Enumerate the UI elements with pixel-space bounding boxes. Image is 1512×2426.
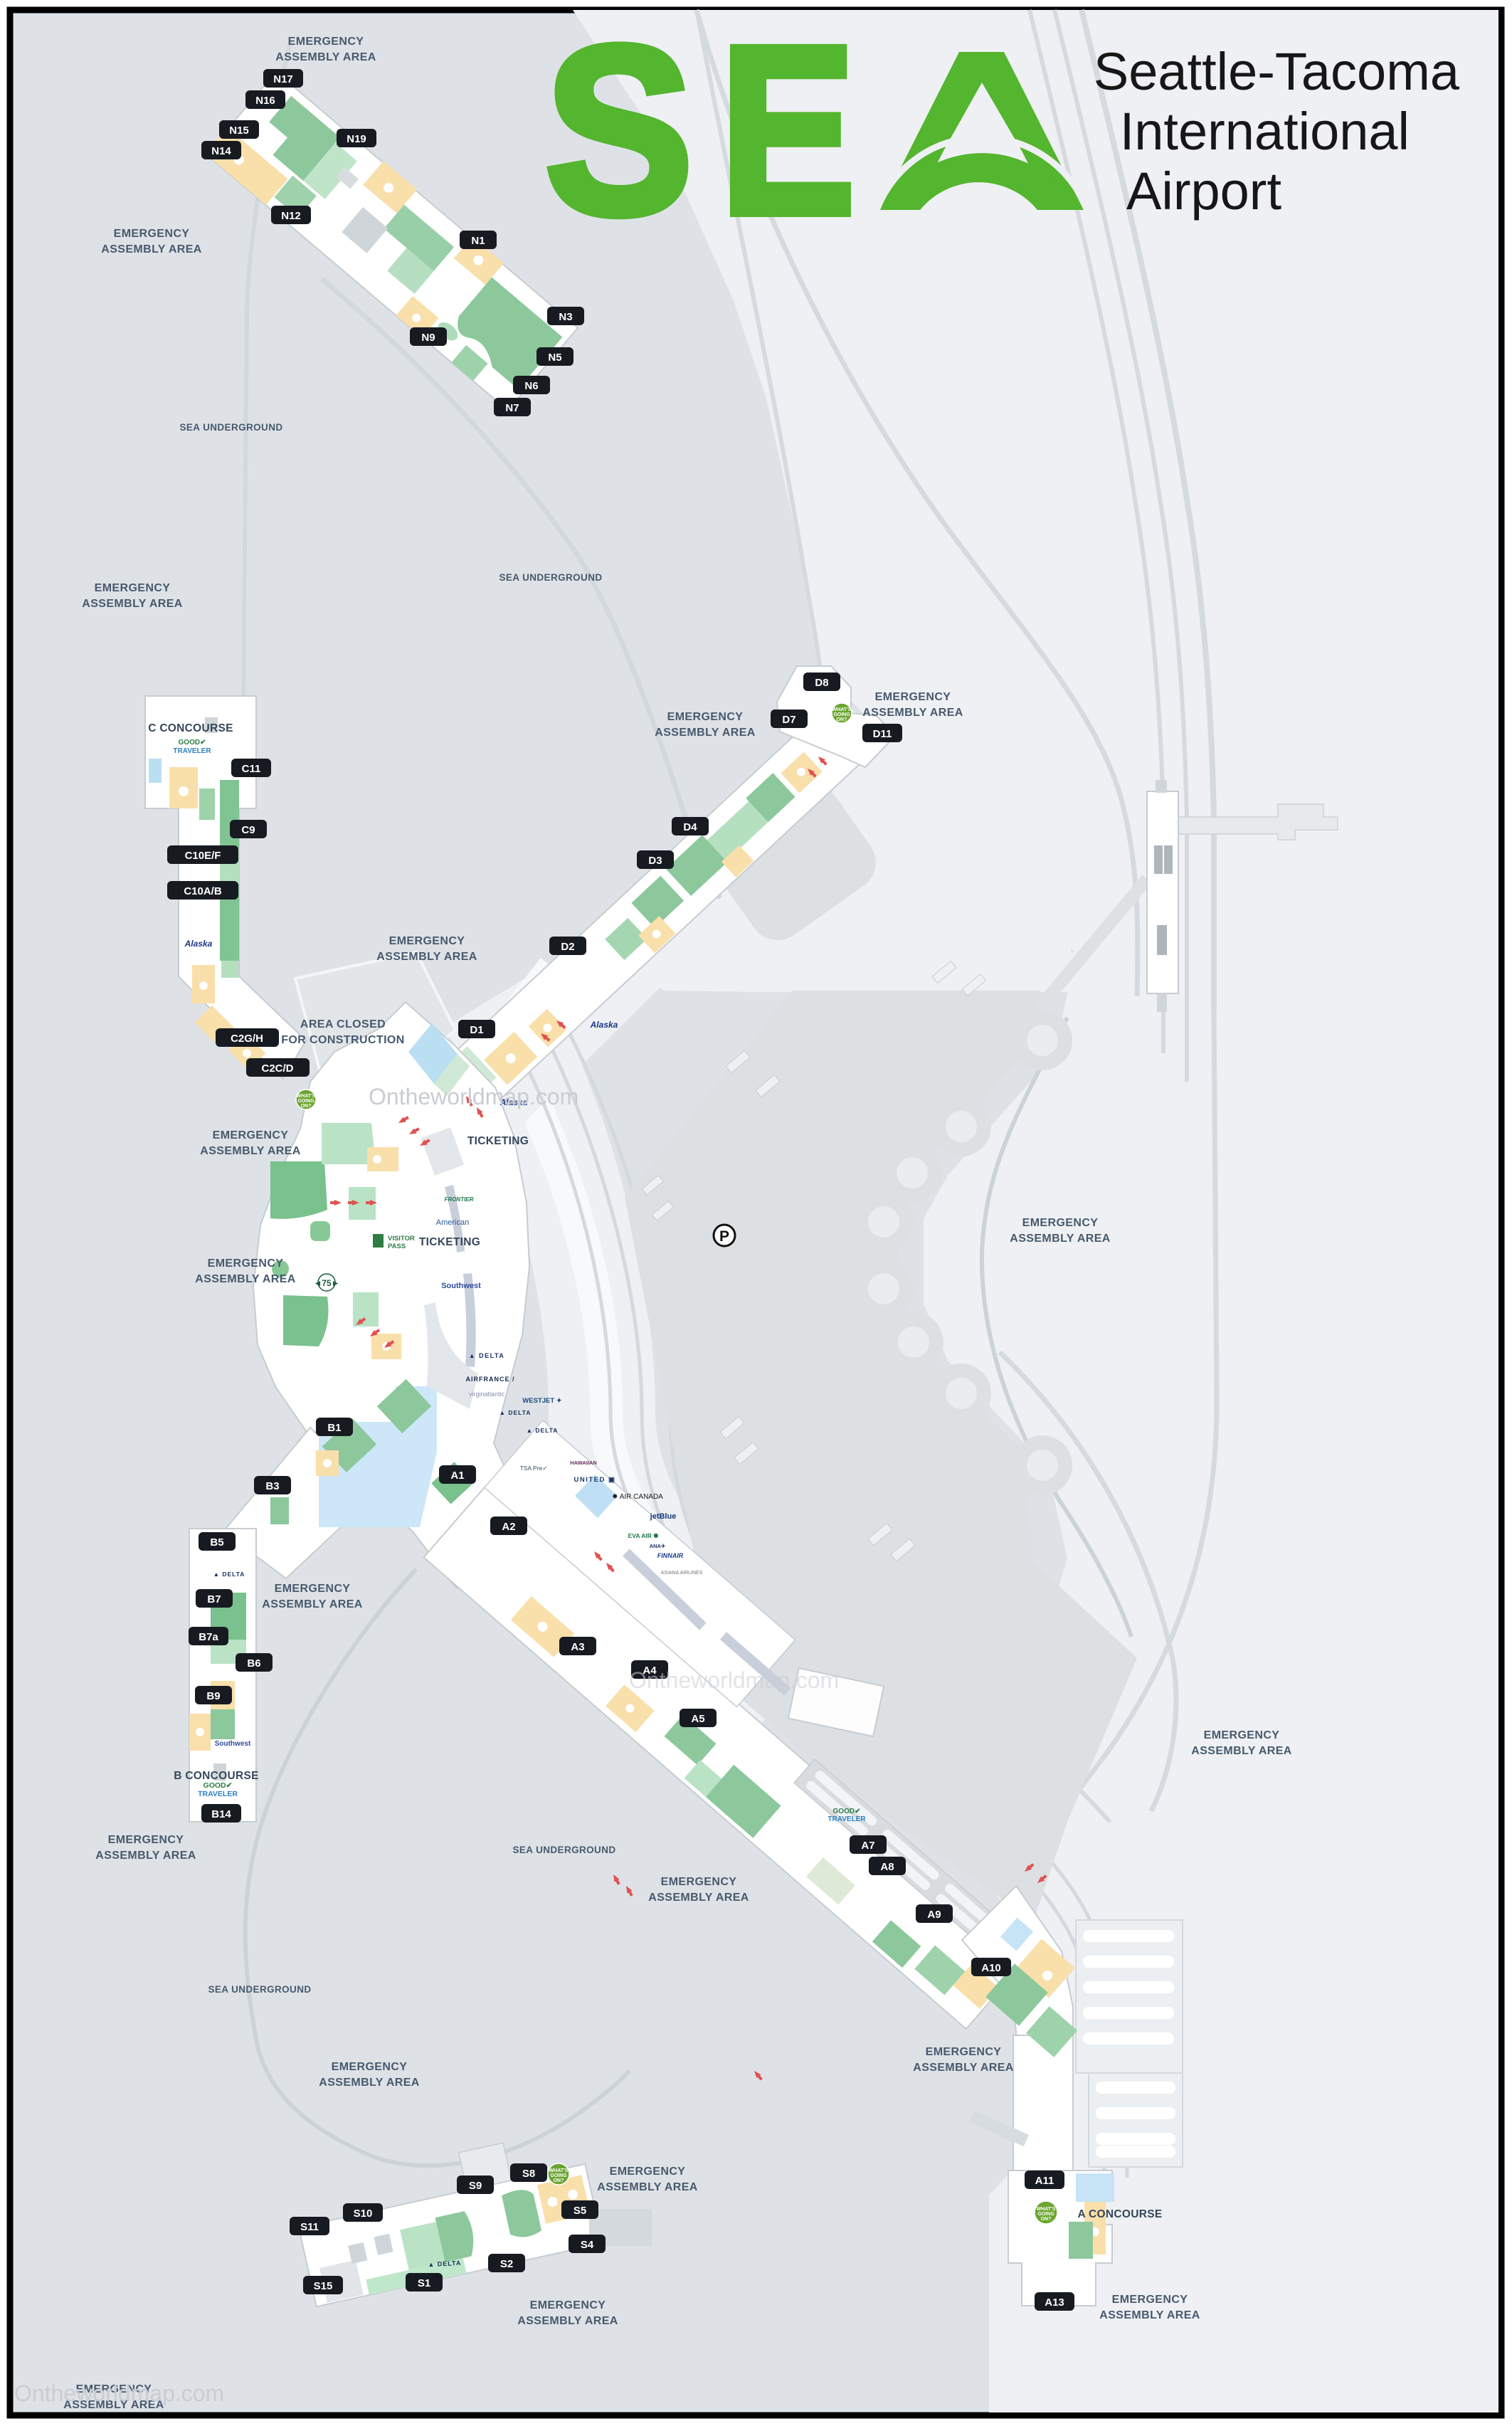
svg-text:AREA CLOSED: AREA CLOSED	[300, 1018, 386, 1030]
svg-text:ASSEMBLY AREA: ASSEMBLY AREA	[648, 1892, 749, 1904]
svg-text:ASSEMBLY AREA: ASSEMBLY AREA	[913, 2062, 1014, 2074]
svg-text:D8: D8	[815, 677, 828, 689]
svg-text:International: International	[1120, 102, 1410, 161]
svg-text:N17: N17	[273, 73, 293, 85]
svg-text:EMERGENCY: EMERGENCY	[875, 691, 951, 703]
svg-text:GOING: GOING	[297, 1099, 314, 1104]
svg-text:FOR CONSTRUCTION: FOR CONSTRUCTION	[281, 1034, 405, 1046]
svg-text:D4: D4	[683, 821, 697, 833]
svg-text:A11: A11	[1035, 2175, 1054, 2187]
svg-text:EMERGENCY: EMERGENCY	[610, 2166, 686, 2178]
svg-text:EMERGENCY: EMERGENCY	[332, 2061, 408, 2073]
svg-text:FINNAIR: FINNAIR	[657, 1552, 684, 1559]
svg-text:N15: N15	[229, 125, 249, 137]
svg-text:D3: D3	[648, 855, 662, 867]
svg-text:GOOD✔: GOOD✔	[179, 739, 206, 747]
svg-text:ASSEMBLY AREA: ASSEMBLY AREA	[195, 1273, 296, 1285]
svg-text:ASIANA AIRLINES: ASIANA AIRLINES	[661, 1571, 703, 1576]
svg-text:ASSEMBLY AREA: ASSEMBLY AREA	[376, 951, 477, 963]
svg-text:EMERGENCY: EMERGENCY	[661, 1876, 737, 1888]
svg-text:WHAT'S: WHAT'S	[549, 2168, 569, 2173]
svg-text:WHAT'S: WHAT'S	[297, 1094, 316, 1099]
svg-text:A5: A5	[691, 1713, 704, 1725]
svg-text:C11: C11	[242, 763, 261, 775]
svg-text:EMERGENCY: EMERGENCY	[108, 1834, 184, 1846]
svg-text:▲ DELTA: ▲ DELTA	[527, 1427, 559, 1434]
svg-text:ASSEMBLY AREA: ASSEMBLY AREA	[655, 727, 756, 739]
svg-text:Ontheworldmap.com: Ontheworldmap.com	[369, 1084, 578, 1109]
svg-text:ANA✈: ANA✈	[650, 1543, 666, 1549]
svg-text:EMERGENCY: EMERGENCY	[667, 711, 744, 723]
svg-text:S10: S10	[354, 2208, 373, 2220]
svg-text:A10: A10	[981, 1962, 1001, 1974]
svg-text:A9: A9	[927, 1909, 941, 1921]
svg-text:S5: S5	[573, 2205, 586, 2217]
svg-text:GOOD✔: GOOD✔	[833, 1808, 861, 1815]
svg-text:FRONTIER: FRONTIER	[445, 1196, 474, 1203]
svg-text:ASSEMBLY AREA: ASSEMBLY AREA	[319, 2077, 420, 2089]
svg-text:C2G/H: C2G/H	[231, 1033, 263, 1045]
svg-text:SEA UNDERGROUND: SEA UNDERGROUND	[512, 1845, 615, 1855]
svg-text:ON?: ON?	[1041, 2217, 1052, 2222]
svg-text:A13: A13	[1045, 2296, 1064, 2309]
svg-text:Seattle-Tacoma: Seattle-Tacoma	[1094, 42, 1460, 101]
svg-text:N12: N12	[281, 210, 301, 222]
svg-text:EMERGENCY: EMERGENCY	[1204, 1729, 1280, 1741]
svg-text:◄75►: ◄75►	[313, 1278, 339, 1288]
svg-text:B5: B5	[210, 1536, 223, 1549]
svg-text:N7: N7	[505, 402, 519, 414]
svg-text:C10E/F: C10E/F	[185, 850, 221, 862]
svg-text:D2: D2	[561, 941, 574, 953]
svg-text:N5: N5	[548, 352, 561, 364]
svg-text:N9: N9	[421, 332, 435, 344]
svg-text:TSA Pre✓: TSA Pre✓	[520, 1465, 548, 1472]
svg-text:EMERGENCY: EMERGENCY	[926, 2046, 1002, 2058]
svg-text:WHAT'S: WHAT'S	[1037, 2207, 1056, 2212]
svg-text:EMERGENCY: EMERGENCY	[95, 582, 171, 594]
svg-text:▲ DELTA: ▲ DELTA	[213, 1571, 245, 1578]
svg-text:B14: B14	[211, 1808, 231, 1820]
svg-text:A7: A7	[861, 1840, 874, 1852]
svg-text:SEA UNDERGROUND: SEA UNDERGROUND	[499, 572, 602, 583]
svg-text:D1: D1	[470, 1024, 483, 1036]
svg-text:S11: S11	[300, 2221, 319, 2233]
svg-text:C CONCOURSE: C CONCOURSE	[148, 722, 233, 734]
svg-text:EMERGENCY: EMERGENCY	[530, 2299, 606, 2311]
svg-text:ASSEMBLY AREA: ASSEMBLY AREA	[862, 707, 963, 719]
svg-text:TRAVELER: TRAVELER	[173, 747, 211, 755]
svg-text:EMERGENCY: EMERGENCY	[114, 228, 190, 240]
svg-text:PASS: PASS	[388, 1243, 406, 1250]
svg-text:▲ DELTA: ▲ DELTA	[469, 1352, 505, 1359]
svg-text:A1: A1	[450, 1470, 464, 1482]
svg-text:Alaska: Alaska	[590, 1020, 618, 1030]
svg-text:EVA AIR ✺: EVA AIR ✺	[628, 1532, 660, 1539]
svg-text:B1: B1	[327, 1422, 341, 1434]
svg-text:S: S	[545, 0, 693, 264]
svg-text:HAWAIIAN: HAWAIIAN	[570, 1460, 597, 1466]
svg-text:TRAVELER: TRAVELER	[828, 1815, 866, 1823]
svg-text:N19: N19	[347, 133, 366, 145]
svg-text:UNITED ▣: UNITED ▣	[574, 1476, 616, 1484]
svg-text:S2: S2	[500, 2258, 513, 2270]
svg-text:ASSEMBLY AREA: ASSEMBLY AREA	[101, 243, 202, 255]
svg-text:TICKETING: TICKETING	[419, 1236, 480, 1248]
svg-text:EMERGENCY: EMERGENCY	[208, 1257, 284, 1270]
svg-text:▲ DELTA: ▲ DELTA	[499, 1409, 532, 1416]
svg-text:ASSEMBLY AREA: ASSEMBLY AREA	[262, 1598, 363, 1610]
svg-text:SEA UNDERGROUND: SEA UNDERGROUND	[179, 422, 282, 433]
svg-text:Southwest: Southwest	[441, 1282, 481, 1290]
svg-text:S8: S8	[522, 2168, 535, 2180]
svg-text:WESTJET ✦: WESTJET ✦	[522, 1397, 562, 1405]
svg-text:EMERGENCY: EMERGENCY	[1022, 1217, 1099, 1229]
svg-text:E: E	[720, 0, 855, 264]
svg-text:VISITOR: VISITOR	[388, 1235, 415, 1243]
svg-text:N16: N16	[255, 95, 275, 107]
svg-text:Alaska: Alaska	[184, 939, 213, 949]
svg-text:B7: B7	[207, 1593, 221, 1605]
svg-text:EMERGENCY: EMERGENCY	[1112, 2294, 1188, 2306]
svg-text:A CONCOURSE: A CONCOURSE	[1078, 2208, 1163, 2220]
svg-text:ASSEMBLY AREA: ASSEMBLY AREA	[200, 1145, 301, 1157]
svg-text:ASSEMBLY AREA: ASSEMBLY AREA	[597, 2181, 698, 2193]
svg-text:A3: A3	[571, 1641, 584, 1653]
svg-text:D7: D7	[782, 714, 795, 726]
svg-text:C2C/D: C2C/D	[261, 1062, 293, 1075]
svg-text:ASSEMBLY AREA: ASSEMBLY AREA	[1010, 1233, 1111, 1245]
svg-text:EMERGENCY: EMERGENCY	[389, 935, 465, 947]
svg-text:ASSEMBLY AREA: ASSEMBLY AREA	[517, 2315, 618, 2327]
svg-text:A8: A8	[880, 1861, 894, 1873]
svg-text:virginatlantic: virginatlantic	[469, 1391, 505, 1398]
svg-text:ASSEMBLY AREA: ASSEMBLY AREA	[275, 51, 376, 63]
svg-text:B CONCOURSE: B CONCOURSE	[174, 1770, 259, 1782]
svg-text:S9: S9	[469, 2180, 482, 2192]
svg-text:ASSEMBLY AREA: ASSEMBLY AREA	[1099, 2309, 1200, 2321]
svg-text:N6: N6	[524, 380, 538, 392]
svg-text:N14: N14	[211, 145, 231, 157]
svg-text:✸ AIR CANADA: ✸ AIR CANADA	[612, 1493, 663, 1501]
svg-text:ON?: ON?	[554, 2178, 564, 2183]
svg-text:GOING: GOING	[1037, 2212, 1054, 2217]
svg-text:AIRFRANCE /: AIRFRANCE /	[466, 1376, 515, 1383]
svg-text:jetBlue: jetBlue	[650, 1512, 677, 1521]
svg-text:EMERGENCY: EMERGENCY	[288, 36, 364, 48]
svg-text:Southwest: Southwest	[215, 1740, 251, 1748]
svg-text:P: P	[719, 1228, 729, 1245]
svg-text:ON?: ON?	[301, 1104, 312, 1109]
svg-text:SEA UNDERGROUND: SEA UNDERGROUND	[208, 1984, 311, 1995]
svg-text:B9: B9	[206, 1690, 220, 1702]
svg-text:B7a: B7a	[199, 1631, 218, 1643]
svg-text:S1: S1	[418, 2277, 430, 2289]
svg-text:TICKETING: TICKETING	[467, 1135, 529, 1147]
svg-text:A2: A2	[502, 1521, 515, 1533]
svg-text:ASSEMBLY AREA: ASSEMBLY AREA	[95, 1850, 196, 1862]
svg-text:EMERGENCY: EMERGENCY	[275, 1583, 351, 1595]
svg-text:ON?: ON?	[837, 717, 847, 722]
svg-text:Airport: Airport	[1126, 162, 1281, 221]
svg-text:Ontheworldmap.com: Ontheworldmap.com	[629, 1667, 839, 1693]
svg-text:TRAVELER: TRAVELER	[198, 1790, 238, 1798]
svg-text:ASSEMBLY AREA: ASSEMBLY AREA	[1191, 1745, 1292, 1757]
svg-text:American: American	[436, 1218, 469, 1227]
svg-text:N3: N3	[559, 311, 572, 323]
svg-text:D11: D11	[873, 728, 892, 740]
svg-text:B3: B3	[265, 1480, 279, 1492]
svg-text:B6: B6	[247, 1657, 260, 1670]
svg-text:EMERGENCY: EMERGENCY	[213, 1129, 289, 1141]
svg-text:S4: S4	[581, 2239, 594, 2251]
svg-text:C10A/B: C10A/B	[184, 885, 222, 897]
svg-text:S15: S15	[314, 2280, 333, 2292]
svg-text:Ontheworldmap.com: Ontheworldmap.com	[14, 2380, 224, 2406]
svg-text:WHAT'S: WHAT'S	[832, 707, 852, 712]
svg-text:N1: N1	[471, 235, 485, 247]
svg-text:ASSEMBLY AREA: ASSEMBLY AREA	[82, 598, 183, 610]
svg-text:GOING: GOING	[550, 2173, 567, 2178]
svg-text:C9: C9	[241, 824, 255, 836]
svg-text:GOING: GOING	[833, 712, 850, 717]
svg-text:GOOD✔: GOOD✔	[203, 1781, 233, 1790]
